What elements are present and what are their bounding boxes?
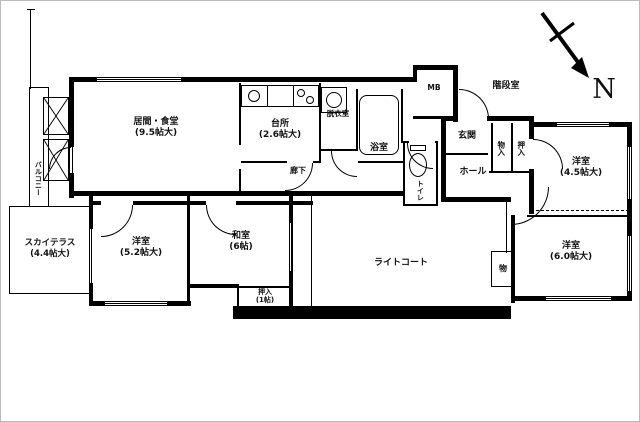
stove-burner-icon — [297, 89, 305, 97]
room-name: 物 — [499, 264, 507, 274]
room-label-living-dining: 居間・食堂 (9.5帖大) — [96, 113, 216, 143]
wall — [69, 77, 74, 198]
room-label-kitchen: 台所 (2.6帖大) — [245, 117, 315, 143]
door-arc-icon — [459, 89, 489, 119]
wall — [233, 306, 511, 319]
window-pane-line — [557, 124, 609, 125]
balcony-rail-line — [30, 9, 31, 89]
wall — [491, 123, 493, 173]
compass-n-text: N — [592, 73, 616, 107]
room-label-western-se: 洋室 (6.0帖大) — [529, 237, 613, 267]
wall — [413, 65, 457, 70]
room-size: (2.6帖大) — [259, 130, 301, 141]
wall — [489, 171, 531, 173]
room-label-stairwell: 階段室 — [479, 81, 533, 93]
room-label-storage: 物 — [493, 257, 513, 281]
wall — [446, 153, 488, 155]
wall — [441, 197, 511, 202]
room-size: (6帖) — [229, 242, 253, 253]
room-size: (4.5帖大) — [560, 168, 602, 179]
room-size: (9.5帖大) — [135, 128, 177, 139]
room-label-entrance: 玄関 — [449, 131, 485, 143]
room-name: スカイテラス — [25, 238, 76, 249]
window-pane-line — [72, 147, 73, 173]
counter-divider — [293, 85, 294, 107]
room-size: (4.4帖大) — [30, 249, 70, 260]
compass-n-label: N — [586, 73, 622, 107]
room-name: 押入 — [516, 141, 525, 156]
wall — [187, 196, 190, 306]
wall — [403, 204, 438, 206]
wall — [436, 141, 438, 204]
room-name: 玄関 — [458, 131, 476, 142]
room-label-mb: MB — [419, 83, 449, 93]
room-name: 台所 — [271, 119, 289, 130]
window-pane-line — [97, 79, 181, 80]
sink-icon — [248, 90, 260, 102]
wall — [239, 169, 241, 193]
room-name: 洋室 — [562, 241, 580, 252]
stove-burner-icon — [306, 96, 314, 104]
window-pane-line — [629, 236, 630, 291]
room-name: 物入 — [496, 141, 505, 156]
wall — [441, 119, 446, 202]
room-label-toilet: トイレ — [413, 177, 427, 203]
room-name: 洋室 — [572, 157, 590, 168]
window-pane-line — [546, 298, 611, 299]
room-name: 脱衣室 — [327, 109, 350, 118]
door-arc-icon — [285, 163, 313, 191]
counter-divider — [267, 85, 268, 107]
room-label-sky-terrace: スカイテラス (4.4帖大) — [11, 235, 89, 263]
wall — [453, 65, 458, 122]
dashed-boundary — [531, 210, 629, 211]
wall — [413, 65, 417, 82]
wall — [187, 284, 239, 288]
room-name: 洋室 — [132, 237, 150, 248]
window-pane-line — [629, 147, 630, 199]
wall — [403, 141, 405, 204]
wall — [527, 215, 631, 217]
room-name: バルコニー — [34, 161, 43, 196]
room-label-closet-left: 物入 — [493, 127, 509, 169]
room-label-light-court: ライトコート — [349, 257, 453, 271]
wall — [401, 89, 403, 143]
door-arc-icon — [533, 139, 563, 169]
wall — [239, 83, 241, 145]
room-size: (1帖) — [256, 297, 274, 305]
room-name: ホール — [459, 167, 486, 178]
crossed-box-icon — [43, 97, 69, 135]
room-name: 居間・食堂 — [133, 117, 178, 128]
wall — [511, 123, 513, 173]
room-label-oshiire: 押入 (1帖) — [239, 287, 291, 307]
room-name: 浴室 — [370, 143, 388, 154]
door-arc-icon — [511, 187, 549, 225]
room-name: MB — [427, 83, 440, 92]
wall — [319, 83, 321, 163]
wall — [511, 215, 515, 303]
floor-plan: N 居間・食堂 (9.5帖大) 台所 (2.6帖大) 脱衣室 浴室 トイレ MB… — [0, 0, 640, 422]
room-label-closet-right: 押入 — [513, 127, 529, 169]
balcony-rail-tick — [27, 9, 35, 10]
window-pane-line — [91, 229, 92, 283]
wall — [69, 191, 403, 196]
room-label-dressing: 脱衣室 — [319, 101, 357, 127]
boundary-line — [311, 196, 312, 306]
room-label-balcony: バルコニー — [32, 151, 44, 205]
room-size: (6.0帖大) — [550, 252, 592, 263]
window-pane-line — [105, 303, 167, 304]
room-name: ライトコート — [374, 258, 428, 269]
room-name: 階段室 — [492, 81, 519, 92]
wall — [487, 116, 534, 121]
wall — [356, 161, 403, 163]
room-size: (5.2帖大) — [120, 248, 162, 259]
boundary-line — [506, 202, 507, 253]
room-name: トイレ — [416, 180, 425, 201]
room-label-washitsu: 和室 (6帖) — [197, 227, 285, 257]
room-label-bath: 浴室 — [357, 143, 401, 155]
door-arc-icon — [331, 151, 357, 177]
room-label-western-sw: 洋室 (5.2帖大) — [103, 233, 179, 263]
window-pane-line — [291, 223, 292, 271]
